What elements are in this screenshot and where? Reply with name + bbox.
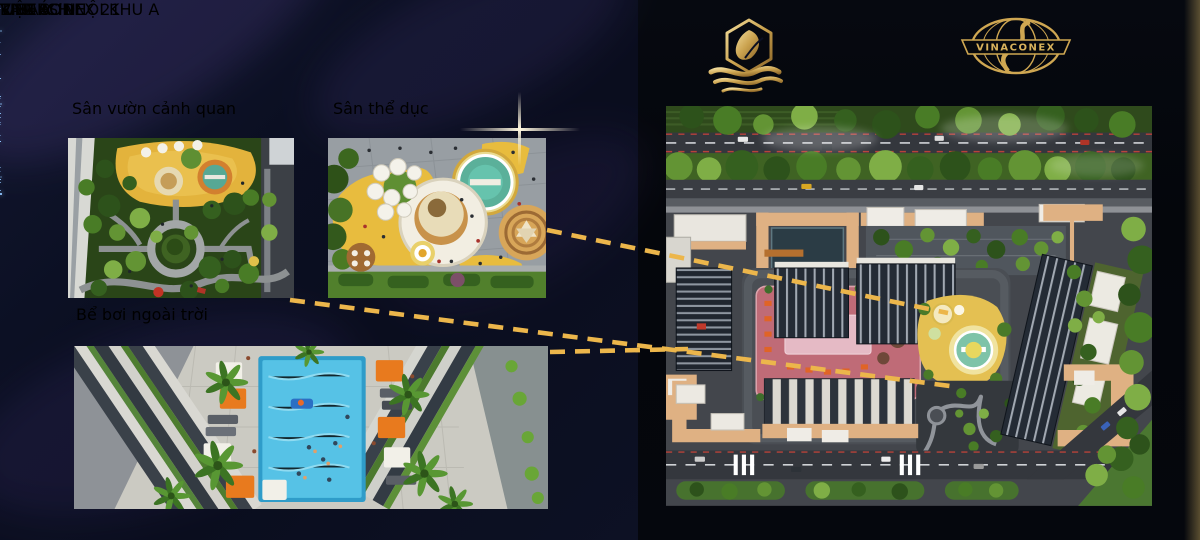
map-border-glow	[965, 490, 1115, 518]
connector-lines	[0, 0, 1200, 540]
poster: TIỆN ÍCH NỘI KHU A Sân vườn cảnh quan Sâ…	[0, 0, 1200, 540]
connector-line-gym	[547, 230, 948, 313]
map-border-glow	[756, 103, 846, 125]
connector-line-garden	[290, 300, 950, 386]
lens-flare-ray	[518, 92, 521, 166]
sparkle	[168, 428, 204, 454]
